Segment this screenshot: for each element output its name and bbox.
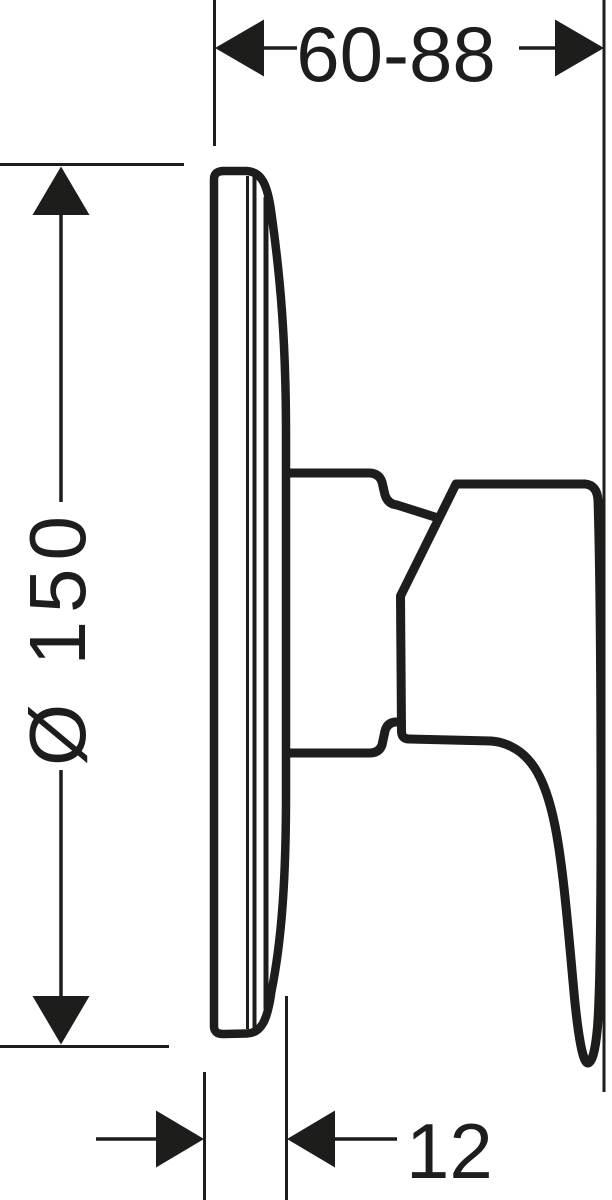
escutcheon-plate-outline: [214, 171, 286, 1034]
dimension-label-diameter: Ø 150: [13, 508, 102, 766]
technical-drawing-canvas: 60-88 Ø 150 12: [0, 0, 612, 1200]
shower-mixer-side-view-drawing: 60-88 Ø 150 12: [0, 0, 612, 1200]
dimension-label-depth: 12: [406, 1107, 493, 1195]
dimension-label-width-range: 60-88: [296, 10, 496, 98]
